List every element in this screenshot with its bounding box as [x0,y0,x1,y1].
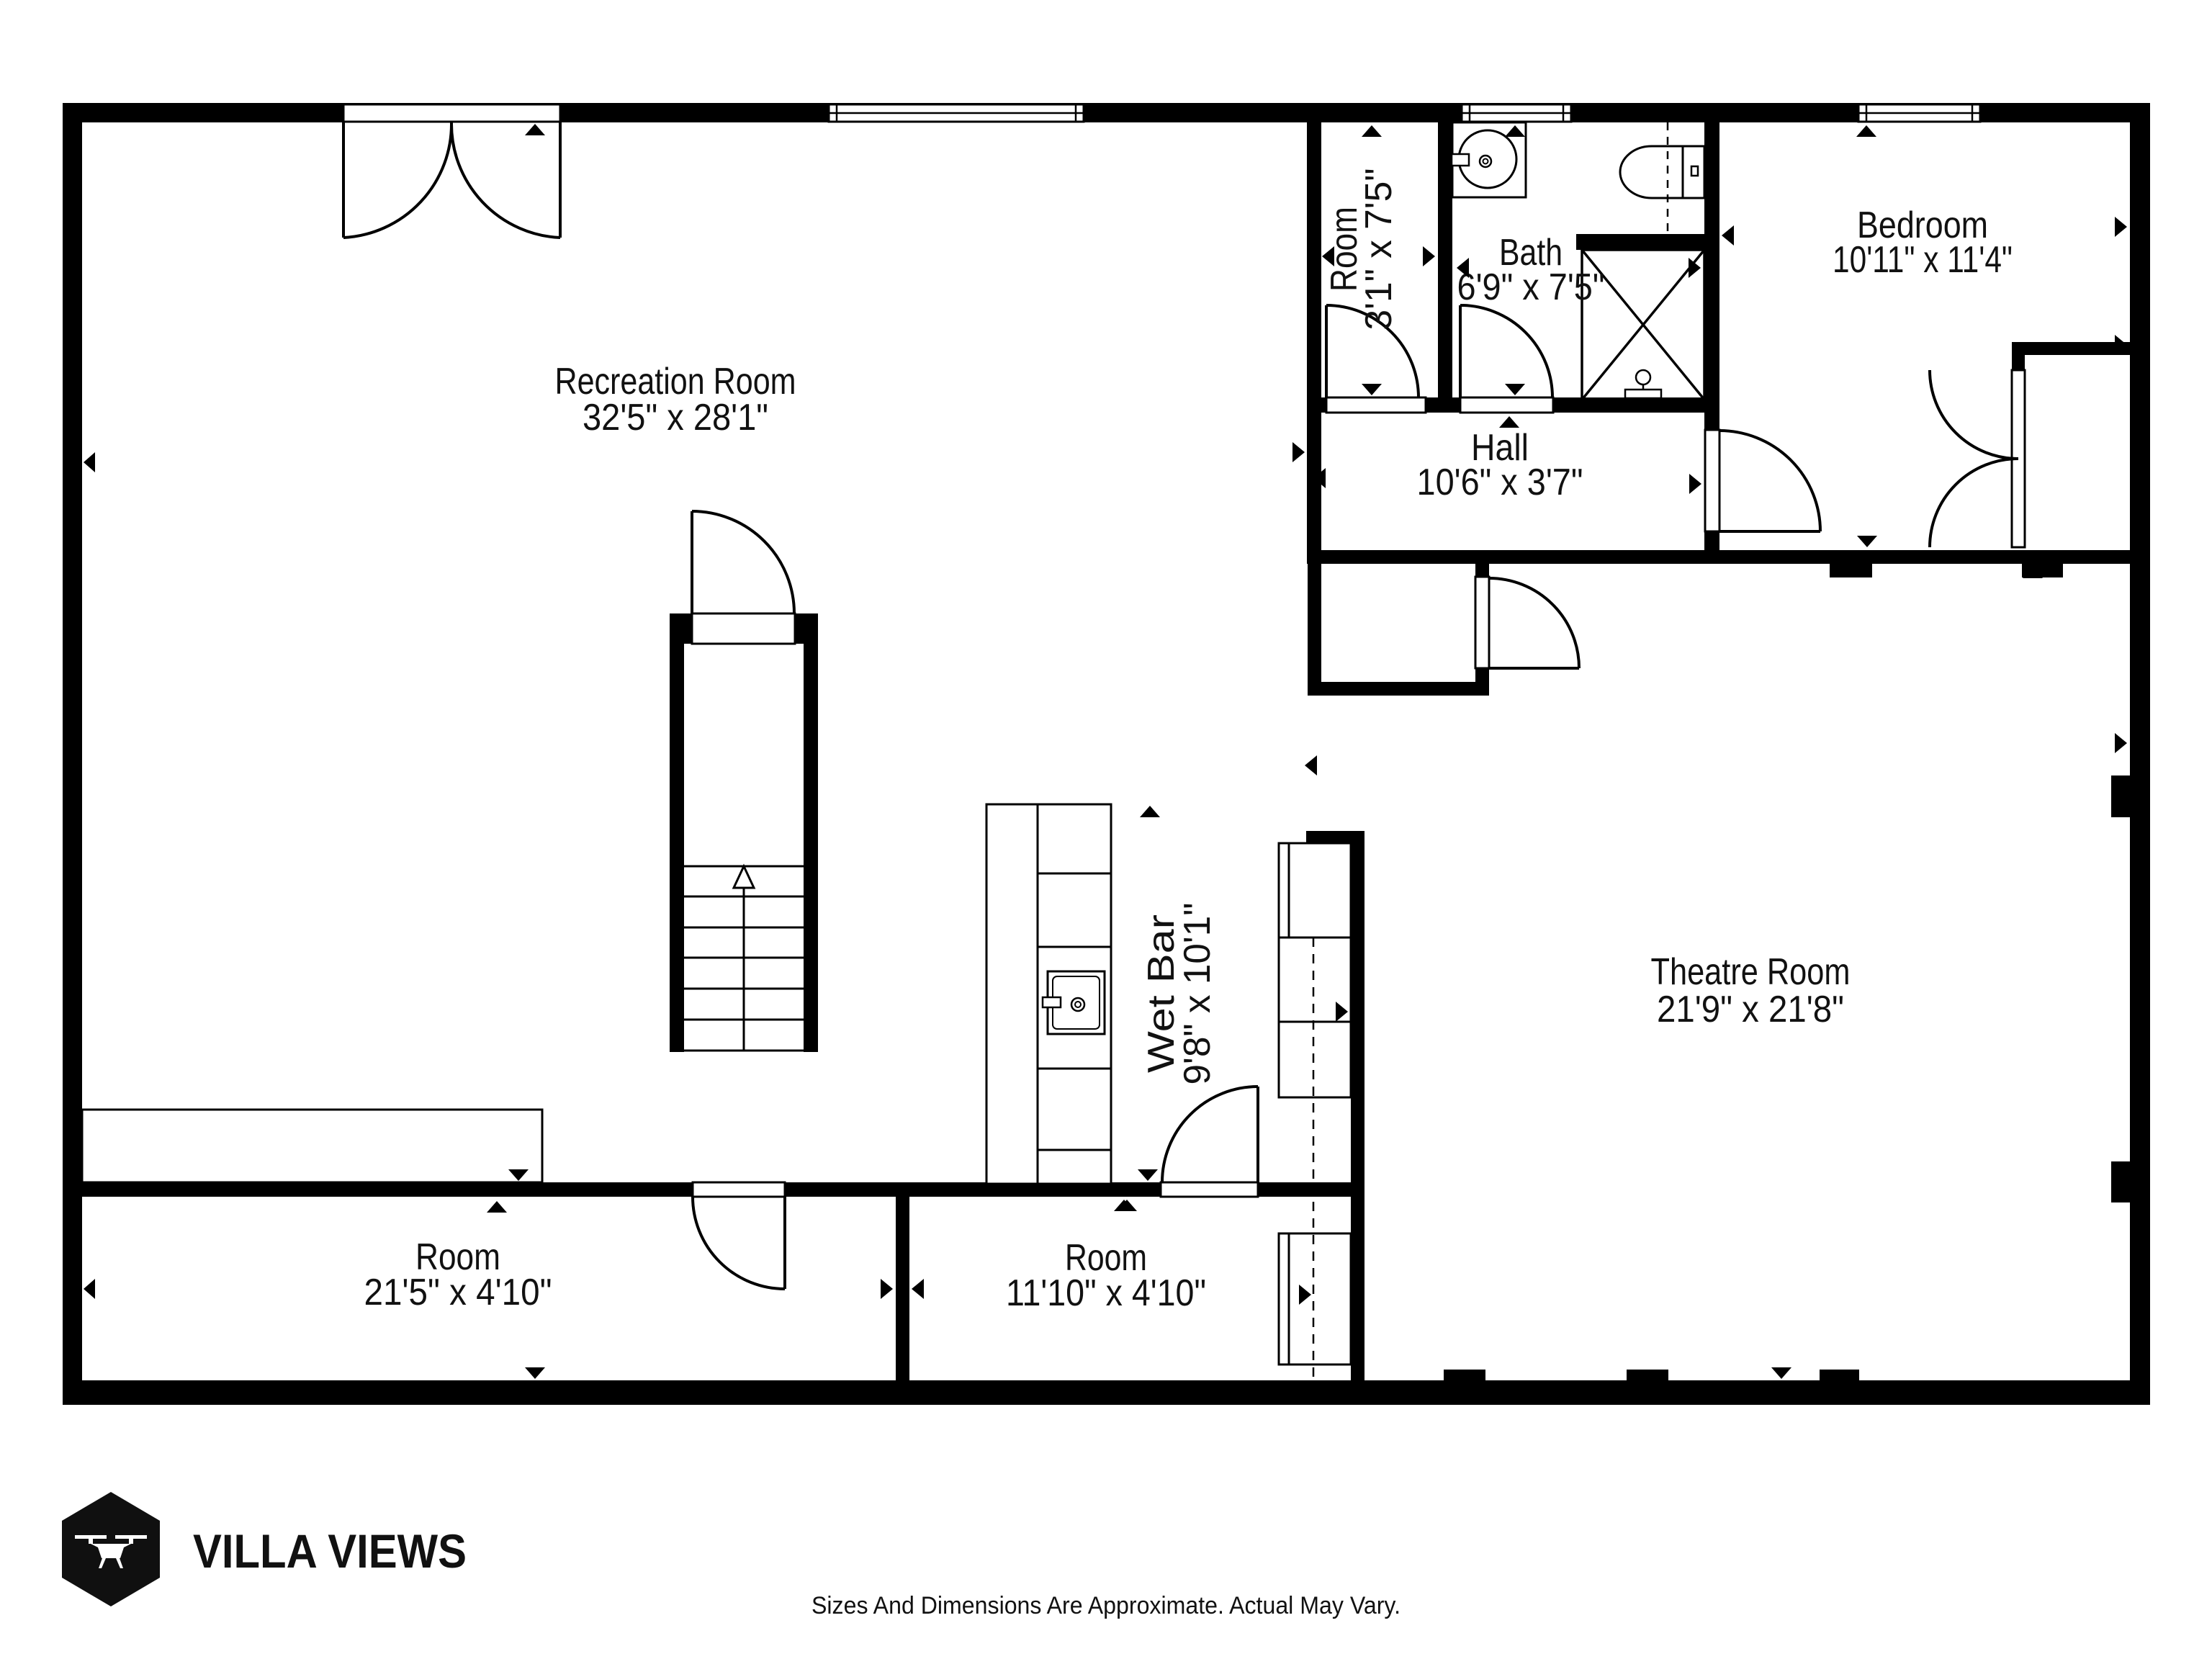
svg-text:Theatre Room: Theatre Room [1651,951,1851,993]
svg-text:11'10" x 4'10": 11'10" x 4'10" [1006,1272,1206,1314]
svg-text:10'11" x 11'4": 10'11" x 11'4" [1833,239,2013,281]
svg-text:VILLA VIEWS: VILLA VIEWS [193,1524,467,1578]
svg-text:21'5" x 4'10": 21'5" x 4'10" [364,1272,552,1313]
svg-text:3'1" x 7'5": 3'1" x 7'5" [1358,168,1400,331]
svg-text:9'8" x 10'1": 9'8" x 10'1" [1177,903,1218,1085]
svg-text:21'9" x 21'8": 21'9" x 21'8" [1657,989,1844,1030]
svg-text:32'5" x 28'1": 32'5" x 28'1" [583,397,768,439]
svg-text:Sizes And Dimensions Are Appro: Sizes And Dimensions Are Approximate. Ac… [811,1592,1401,1619]
svg-text:10'6" x 3'7": 10'6" x 3'7" [1417,462,1583,503]
svg-text:6'9" x 7'5": 6'9" x 7'5" [1457,266,1605,308]
